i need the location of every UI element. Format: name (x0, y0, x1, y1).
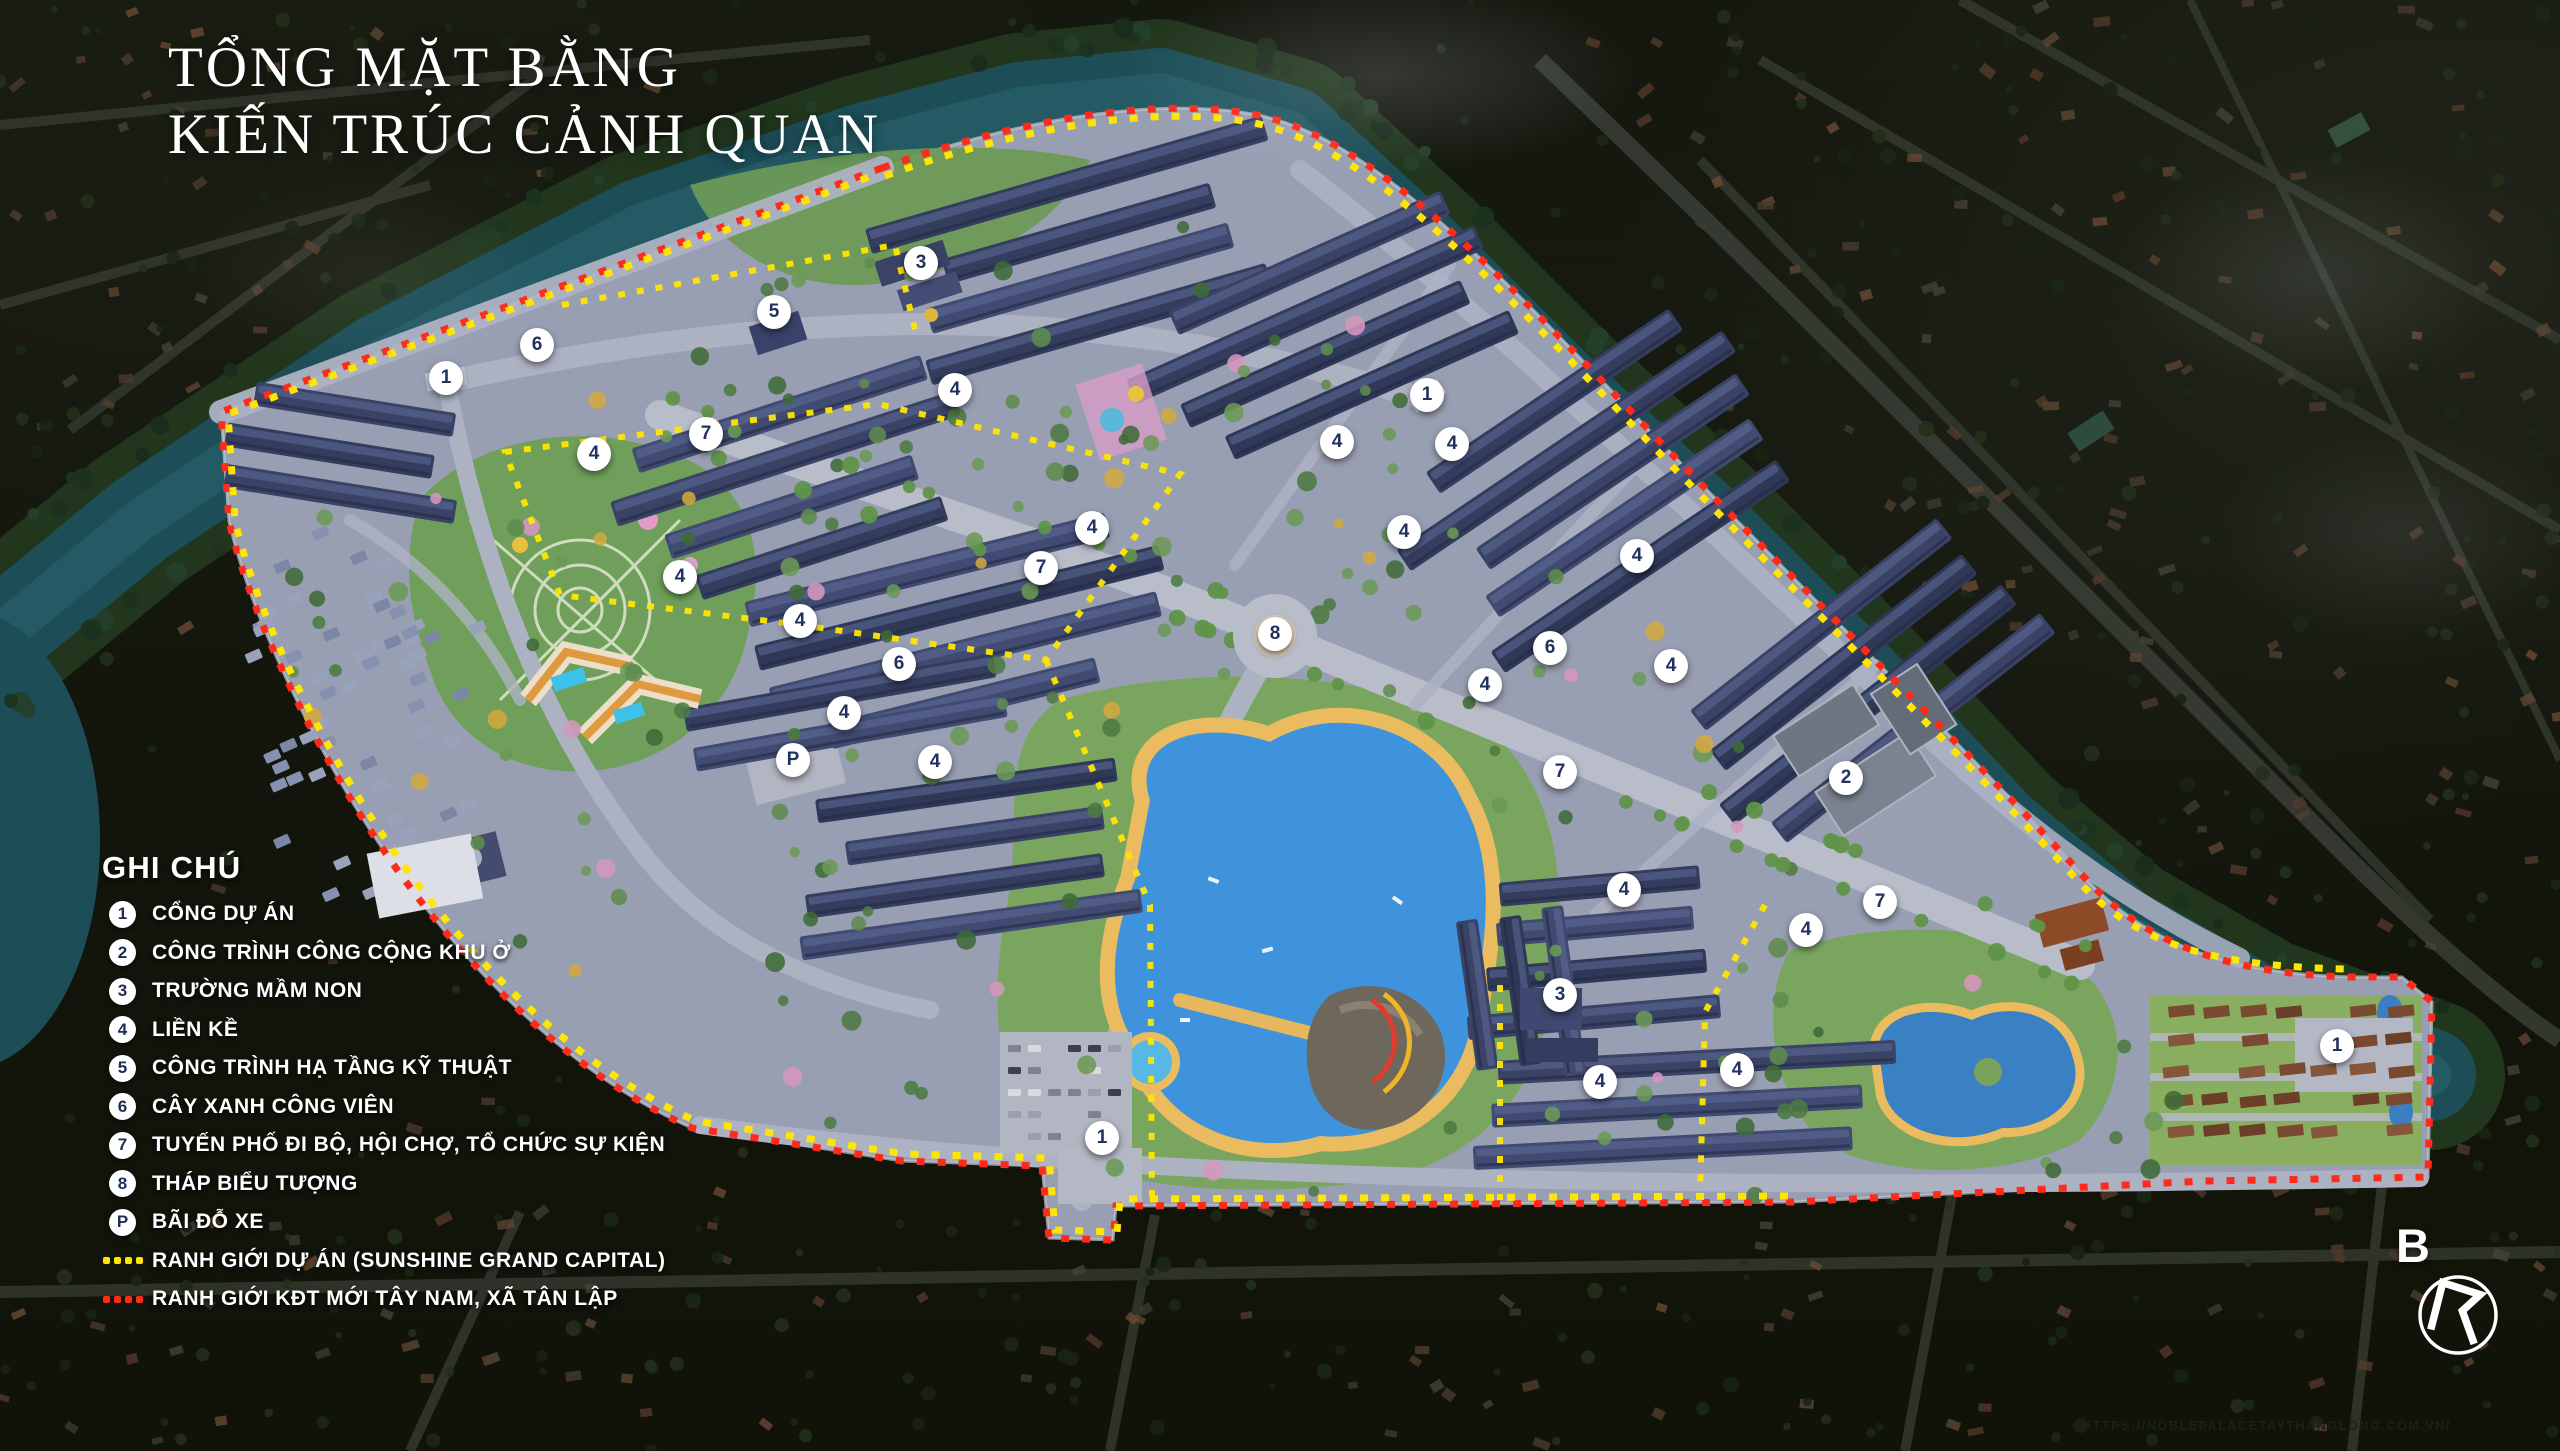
map-marker-1: 1 (1410, 378, 1444, 412)
legend-symbol-dotted-line (103, 1257, 143, 1264)
tip-plaza (2295, 1018, 2413, 1092)
legend-symbol-circle: 4 (109, 1016, 136, 1043)
map-marker-4: 4 (1720, 1053, 1754, 1087)
map-marker-4: 4 (783, 604, 817, 638)
map-marker-4: 4 (663, 560, 697, 594)
map-marker-4: 4 (938, 373, 972, 407)
legend-symbol-dotted-line (103, 1296, 143, 1303)
map-marker-6: 6 (520, 328, 554, 362)
legend-row: 8THÁP BIỂU TƯỢNG (102, 1165, 665, 1204)
legend-row: 5CÔNG TRÌNH HẠ TẦNG KỸ THUẬT (102, 1049, 665, 1088)
legend-symbol-circle: 1 (109, 901, 136, 928)
legend: GHI CHÚ 1CỔNG DỰ ÁN2CÔNG TRÌNH CÔNG CỘNG… (102, 850, 665, 1319)
legend-item-label: RANH GIỚI DỰ ÁN (SUNSHINE GRAND CAPITAL) (152, 1249, 665, 1273)
legend-item-label: CÔNG TRÌNH CÔNG CỘNG KHU Ở (152, 941, 511, 965)
brand-logo (2417, 1274, 2499, 1356)
logo-r-glyph (2431, 1283, 2480, 1344)
map-marker-5: 5 (757, 295, 791, 329)
legend-symbol-circle: 5 (109, 1055, 136, 1082)
legend-row: 1CỔNG DỰ ÁN (102, 895, 665, 934)
legend-item-label: CỔNG DỰ ÁN (152, 902, 295, 926)
map-marker-7: 7 (1543, 755, 1577, 789)
legend-row: 3TRƯỜNG MẦM NON (102, 972, 665, 1011)
map-marker-P: P (776, 743, 810, 777)
legend-row: RANH GIỚI DỰ ÁN (SUNSHINE GRAND CAPITAL) (102, 1242, 665, 1281)
legend-row: 4LIỀN KỀ (102, 1011, 665, 1050)
map-marker-7: 7 (1024, 551, 1058, 585)
north-indicator: B (2396, 1218, 2430, 1273)
map-marker-6: 6 (882, 647, 916, 681)
legend-symbol-circle: 3 (109, 978, 136, 1005)
map-marker-4: 4 (577, 437, 611, 471)
legend-symbol-circle: 7 (109, 1132, 136, 1159)
map-marker-4: 4 (1435, 427, 1469, 461)
map-marker-4: 4 (1607, 873, 1641, 907)
map-marker-4: 4 (1789, 913, 1823, 947)
masterplan-page: 3561417444447448644644P47274434411 TỔNG … (0, 0, 2560, 1451)
title-line-1: TỔNG MẶT BẰNG (168, 34, 881, 101)
legend-row: PBÃI ĐỖ XE (102, 1203, 665, 1242)
map-marker-4: 4 (1387, 515, 1421, 549)
map-marker-2: 2 (1829, 761, 1863, 795)
legend-items: 1CỔNG DỰ ÁN2CÔNG TRÌNH CÔNG CỘNG KHU Ở3T… (102, 895, 665, 1319)
map-marker-4: 4 (918, 745, 952, 779)
legend-symbol-circle: 6 (109, 1093, 136, 1120)
legend-item-label: TRƯỜNG MẦM NON (152, 979, 362, 1003)
legend-symbol-circle: 2 (109, 939, 136, 966)
legend-row: RANH GIỚI KĐT MỚI TÂY NAM, XÃ TÂN LẬP (102, 1280, 665, 1319)
map-marker-1: 1 (1085, 1121, 1119, 1155)
title-line-2: KIẾN TRÚC CẢNH QUAN (168, 101, 881, 168)
map-marker-6: 6 (1533, 631, 1567, 665)
legend-symbol-circle: P (109, 1209, 136, 1236)
map-marker-4: 4 (1654, 649, 1688, 683)
map-marker-8: 8 (1258, 617, 1292, 651)
legend-heading: GHI CHÚ (102, 850, 665, 886)
watermark-url: HTTPS://NOBLEPALACETAYTHANGLONG.COM.VN/ (2082, 1419, 2451, 1433)
map-marker-3: 3 (1543, 978, 1577, 1012)
legend-item-label: THÁP BIỂU TƯỢNG (152, 1172, 358, 1196)
map-marker-4: 4 (1620, 539, 1654, 573)
map-marker-4: 4 (827, 696, 861, 730)
page-title: TỔNG MẶT BẰNG KIẾN TRÚC CẢNH QUAN (168, 34, 881, 168)
legend-item-label: BÃI ĐỖ XE (152, 1210, 264, 1234)
legend-item-label: CÔNG TRÌNH HẠ TẦNG KỸ THUẬT (152, 1056, 512, 1080)
map-marker-3: 3 (904, 246, 938, 280)
legend-item-label: CÂY XANH CÔNG VIÊN (152, 1095, 394, 1119)
map-marker-4: 4 (1075, 511, 1109, 545)
map-marker-7: 7 (1863, 885, 1897, 919)
map-marker-4: 4 (1320, 425, 1354, 459)
map-marker-1: 1 (429, 361, 463, 395)
map-marker-4: 4 (1468, 668, 1502, 702)
legend-item-label: TUYẾN PHỐ ĐI BỘ, HỘI CHỢ, TỔ CHỨC SỰ KIỆ… (152, 1133, 665, 1157)
legend-symbol-circle: 8 (109, 1170, 136, 1197)
east-lake-island (1974, 1058, 2002, 1086)
canal-pond (0, 610, 100, 1070)
legend-row: 6CÂY XANH CÔNG VIÊN (102, 1088, 665, 1127)
legend-item-label: RANH GIỚI KĐT MỚI TÂY NAM, XÃ TÂN LẬP (152, 1287, 618, 1311)
legend-item-label: LIỀN KỀ (152, 1018, 238, 1042)
map-marker-4: 4 (1583, 1065, 1617, 1099)
map-marker-1: 1 (2320, 1029, 2354, 1063)
legend-row: 7TUYẾN PHỐ ĐI BỘ, HỘI CHỢ, TỔ CHỨC SỰ KI… (102, 1126, 665, 1165)
map-marker-7: 7 (689, 417, 723, 451)
legend-row: 2CÔNG TRÌNH CÔNG CỘNG KHU Ở (102, 934, 665, 973)
